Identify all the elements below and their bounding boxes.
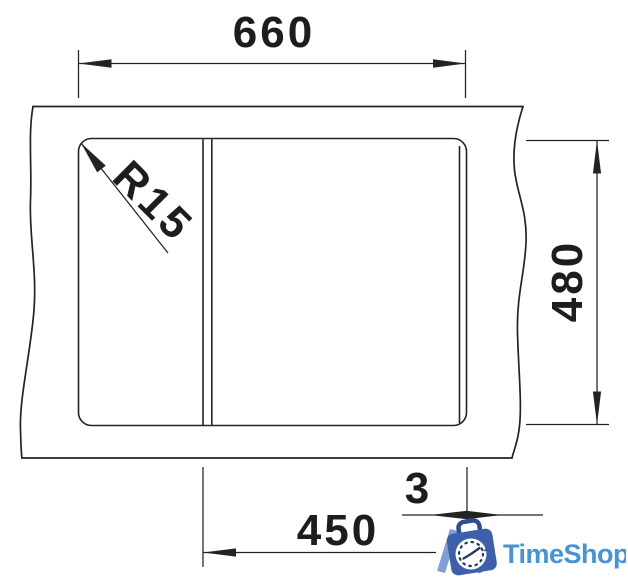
- dim-label-width: 660: [233, 11, 315, 55]
- drawing-linework: [0, 0, 628, 587]
- dim-480-bottom-arrow: [593, 392, 601, 425]
- logo-wordmark: TimeShop: [503, 539, 626, 569]
- countertop-left-torn-edge: [20, 107, 34, 459]
- dim-660-extension-lines: [79, 50, 466, 98]
- dim-label-gap: 3: [405, 467, 429, 511]
- dimension-arrowheads: [79, 59, 602, 556]
- timeshop-logo: TimeShop: [426, 517, 626, 585]
- dim-660-left-arrow: [79, 59, 112, 67]
- dim-label-bowl-width: 450: [297, 509, 379, 553]
- sink-technical-drawing: 660 480 450 3 R15 TimeShop: [0, 0, 628, 587]
- radius-leader-arrow: [81, 143, 106, 172]
- dim-450-left-arrow: [203, 548, 236, 556]
- dim-label-depth: 480: [546, 240, 590, 322]
- dim-480-top-arrow: [593, 141, 601, 174]
- dim-660-right-arrow: [433, 59, 466, 67]
- dimension-lines: [79, 50, 610, 567]
- countertop-right-torn-edge: [512, 107, 526, 459]
